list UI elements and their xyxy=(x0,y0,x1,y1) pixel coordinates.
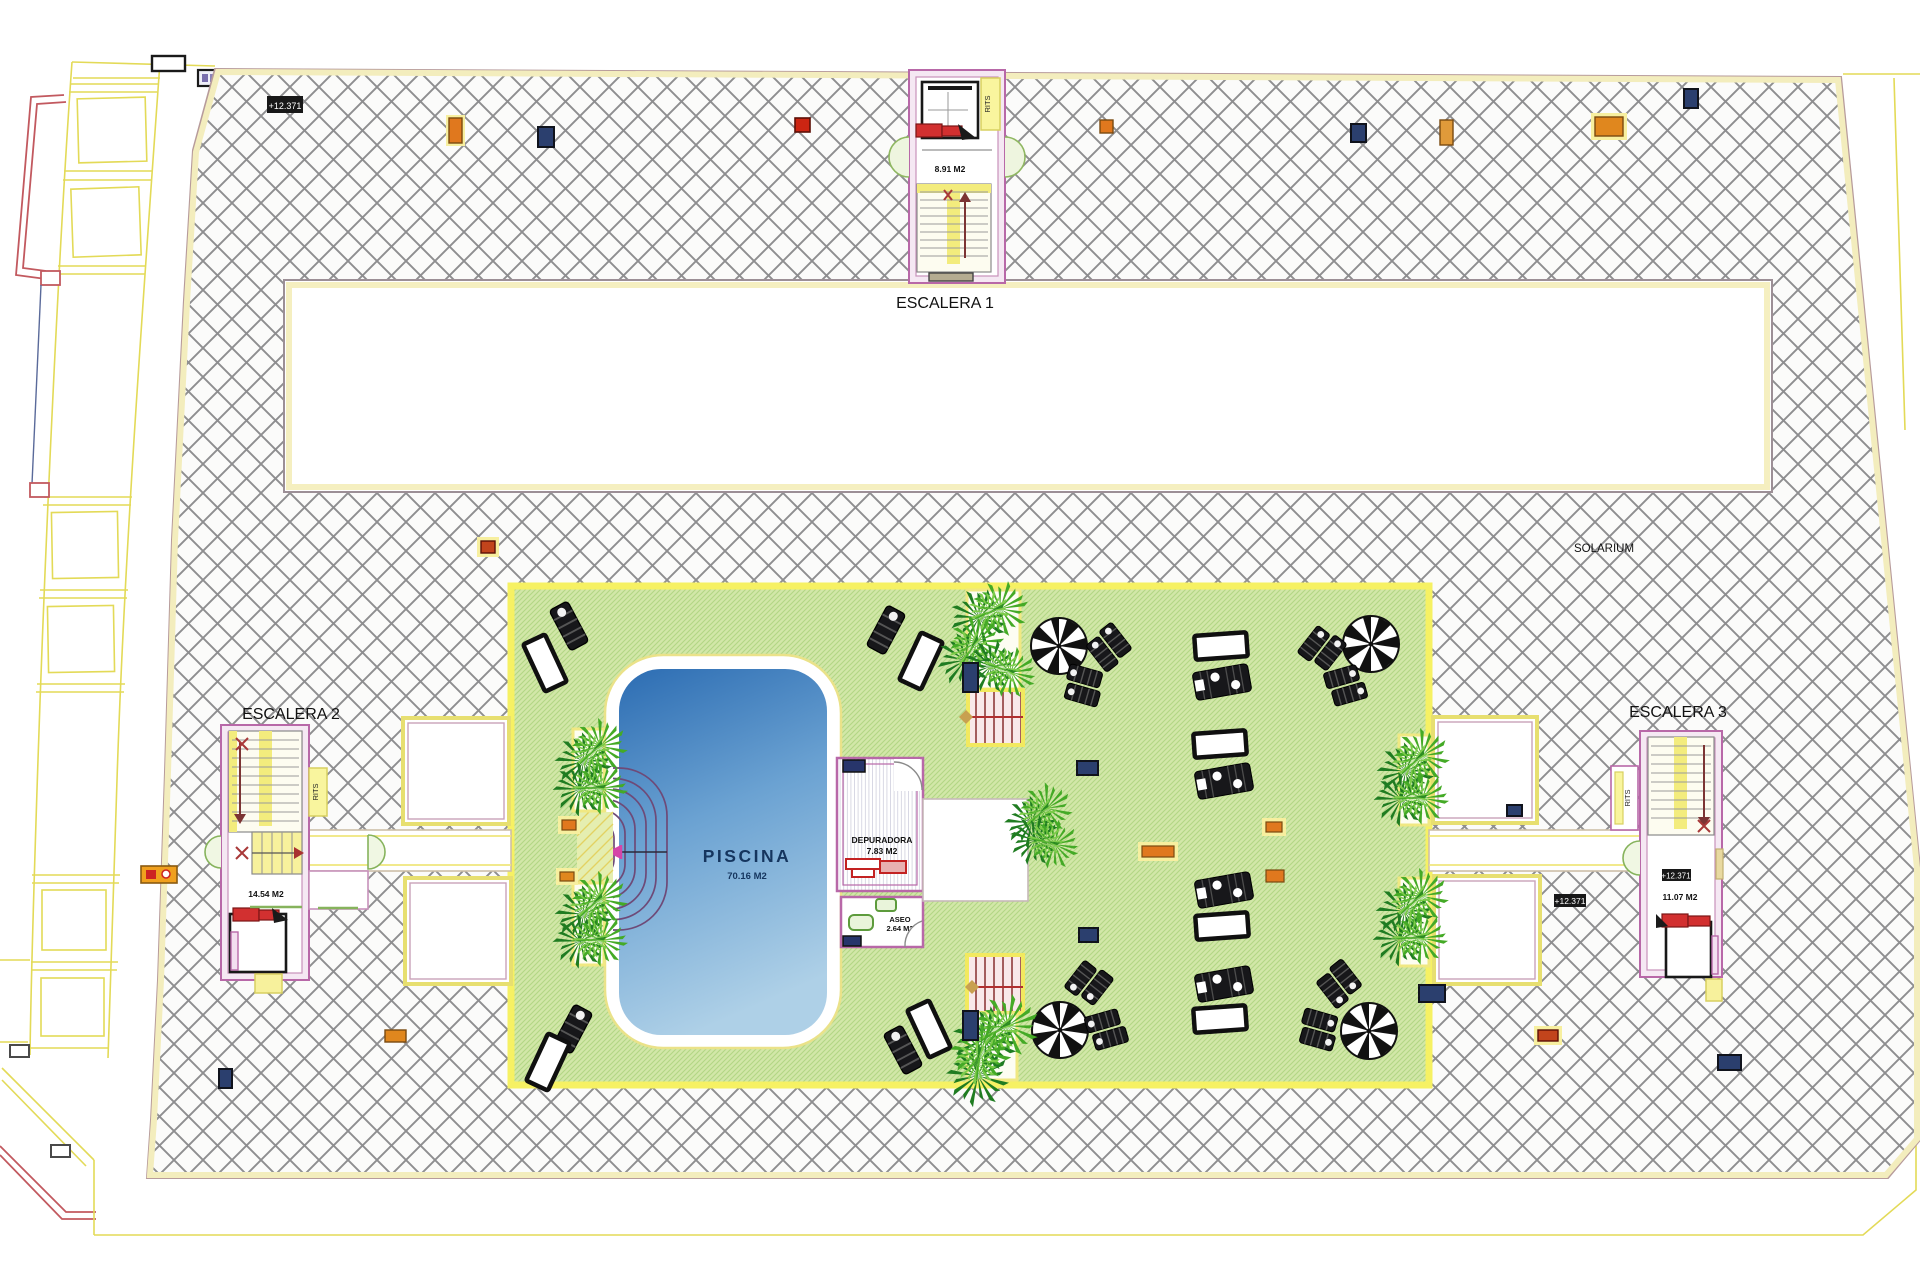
svg-text:ESCALERA 2: ESCALERA 2 xyxy=(242,706,340,723)
svg-text:+12.371: +12.371 xyxy=(269,101,302,111)
svg-text:RITS: RITS xyxy=(983,95,992,112)
svg-text:14.54 M2: 14.54 M2 xyxy=(248,889,284,899)
svg-text:RITS: RITS xyxy=(311,783,320,800)
svg-text:7.83 M2: 7.83 M2 xyxy=(867,846,898,856)
svg-text:+12.371: +12.371 xyxy=(1555,896,1586,906)
svg-text:70.16 M2: 70.16 M2 xyxy=(727,871,767,882)
svg-text:+12.371: +12.371 xyxy=(1661,872,1691,881)
svg-text:RITS: RITS xyxy=(1623,789,1632,806)
svg-text:PISCINA: PISCINA xyxy=(703,846,791,866)
svg-text:SOLARIUM: SOLARIUM xyxy=(1574,543,1634,555)
svg-text:8.91 M2: 8.91 M2 xyxy=(935,164,966,174)
svg-text:11.07 M2: 11.07 M2 xyxy=(1663,892,1698,902)
svg-text:ASEO: ASEO xyxy=(889,915,910,924)
svg-text:ESCALERA 1: ESCALERA 1 xyxy=(896,295,994,312)
svg-text:DEPURADORA: DEPURADORA xyxy=(852,835,913,845)
svg-text:ESCALERA 3: ESCALERA 3 xyxy=(1629,704,1727,721)
